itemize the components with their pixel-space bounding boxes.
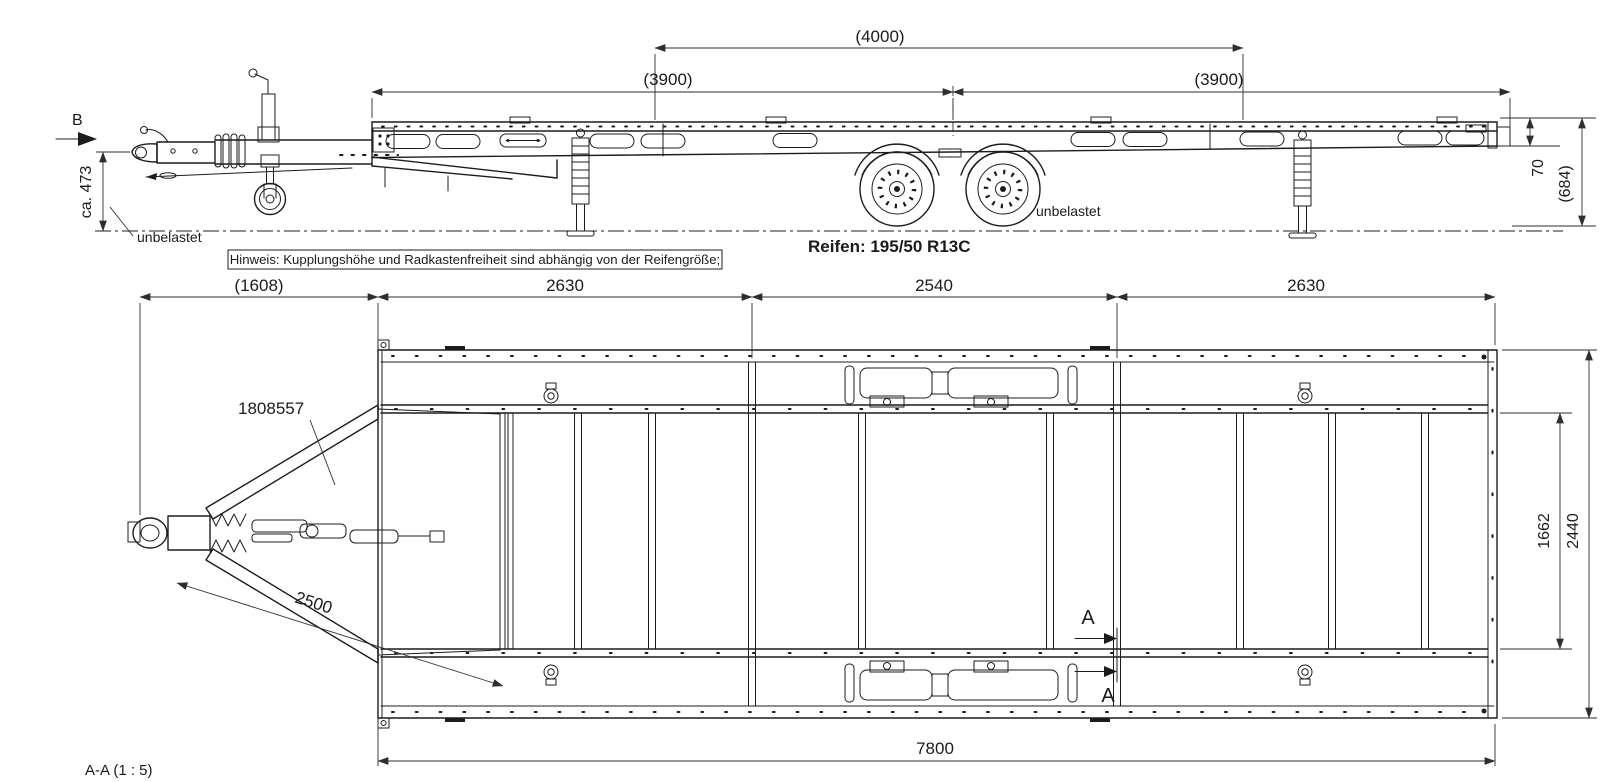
part-number-callout: 1808557 — [238, 399, 335, 485]
dim-7800: 7800 — [378, 724, 1495, 766]
section-view-title: A-A (1 : 5) — [85, 762, 153, 779]
fender-front — [855, 144, 939, 175]
axle-assemblies — [845, 366, 1077, 702]
unloaded-rear-label: unbelastet — [1036, 203, 1101, 219]
support-leg-front — [567, 129, 594, 236]
side-frame-rail — [372, 117, 1510, 166]
frame-outline — [378, 340, 1497, 728]
dim-4000: (4000) — [655, 27, 1243, 120]
breakaway-cable — [146, 168, 352, 180]
note-text: Hinweis: Kupplungshöhe und Radkastenfrei… — [230, 252, 720, 267]
dim-3900-right-label: (3900) — [1194, 70, 1243, 89]
part-number-label: 1808557 — [238, 399, 304, 418]
dim-3900-left-label: (3900) — [643, 70, 692, 89]
tandem-axle-wheels — [855, 86, 1045, 226]
section-label-bottom: A — [1101, 685, 1115, 707]
dim-2630-rear-label: 2630 — [1287, 276, 1325, 295]
rail-name-plate — [500, 134, 546, 147]
tire-spec-label: Reifen: 195/50 R13C — [808, 237, 971, 256]
jack-crank — [249, 69, 279, 142]
dim-2500-label: 2500 — [293, 588, 335, 618]
dim-2540-label: 2540 — [915, 276, 953, 295]
dim-1608-label: (1608) — [234, 276, 283, 295]
dim-widths: 1662 2440 — [1500, 350, 1597, 718]
view-arrow-b-label: B — [72, 112, 83, 129]
rail-cutouts — [386, 131, 1484, 149]
coupling-bellows — [215, 134, 245, 168]
dim-2630-front-label: 2630 — [546, 276, 584, 295]
dim-4000-label: (4000) — [855, 27, 904, 46]
top-view: A A (1608) 2630 2540 2630 1808557 — [128, 276, 1597, 766]
dim-rear-heights: 70 (684) — [1500, 118, 1596, 226]
coupling-head — [132, 127, 215, 164]
support-leg-rear — [1289, 131, 1316, 238]
side-view: B (4000) (3900) (3900) ca. 473 — [56, 27, 1596, 269]
dim-2440-label: 2440 — [1565, 513, 1582, 549]
section-label-top: A — [1081, 607, 1095, 629]
dim-3900-pair: (3900) (3900) — [372, 70, 1510, 128]
view-arrow-b: B — [56, 112, 97, 146]
fender-rear — [961, 144, 1045, 175]
coupling-top — [128, 514, 444, 552]
tie-down-rings — [544, 383, 1312, 685]
drawbar-side — [132, 69, 557, 215]
drawbar-top — [128, 405, 500, 663]
dim-7800-label: 7800 — [916, 739, 954, 758]
note-box: Hinweis: Kupplungshöhe und Radkastenfrei… — [228, 250, 722, 269]
dim-70-label: 70 — [1530, 159, 1547, 177]
dim-2500: 2500 — [177, 583, 503, 686]
dim-1662-label: 1662 — [1536, 513, 1553, 549]
trailer-chassis-drawing: B (4000) (3900) (3900) ca. 473 — [0, 0, 1600, 782]
trailer-technical-drawing-page: B (4000) (3900) (3900) ca. 473 — [0, 0, 1600, 782]
unloaded-front-label: unbelastet — [137, 229, 202, 245]
dim-ca473-label: ca. 473 — [78, 166, 95, 219]
dim-top-chain: (1608) 2630 2540 2630 — [140, 276, 1495, 515]
dim-684-label: (684) — [1557, 165, 1574, 202]
